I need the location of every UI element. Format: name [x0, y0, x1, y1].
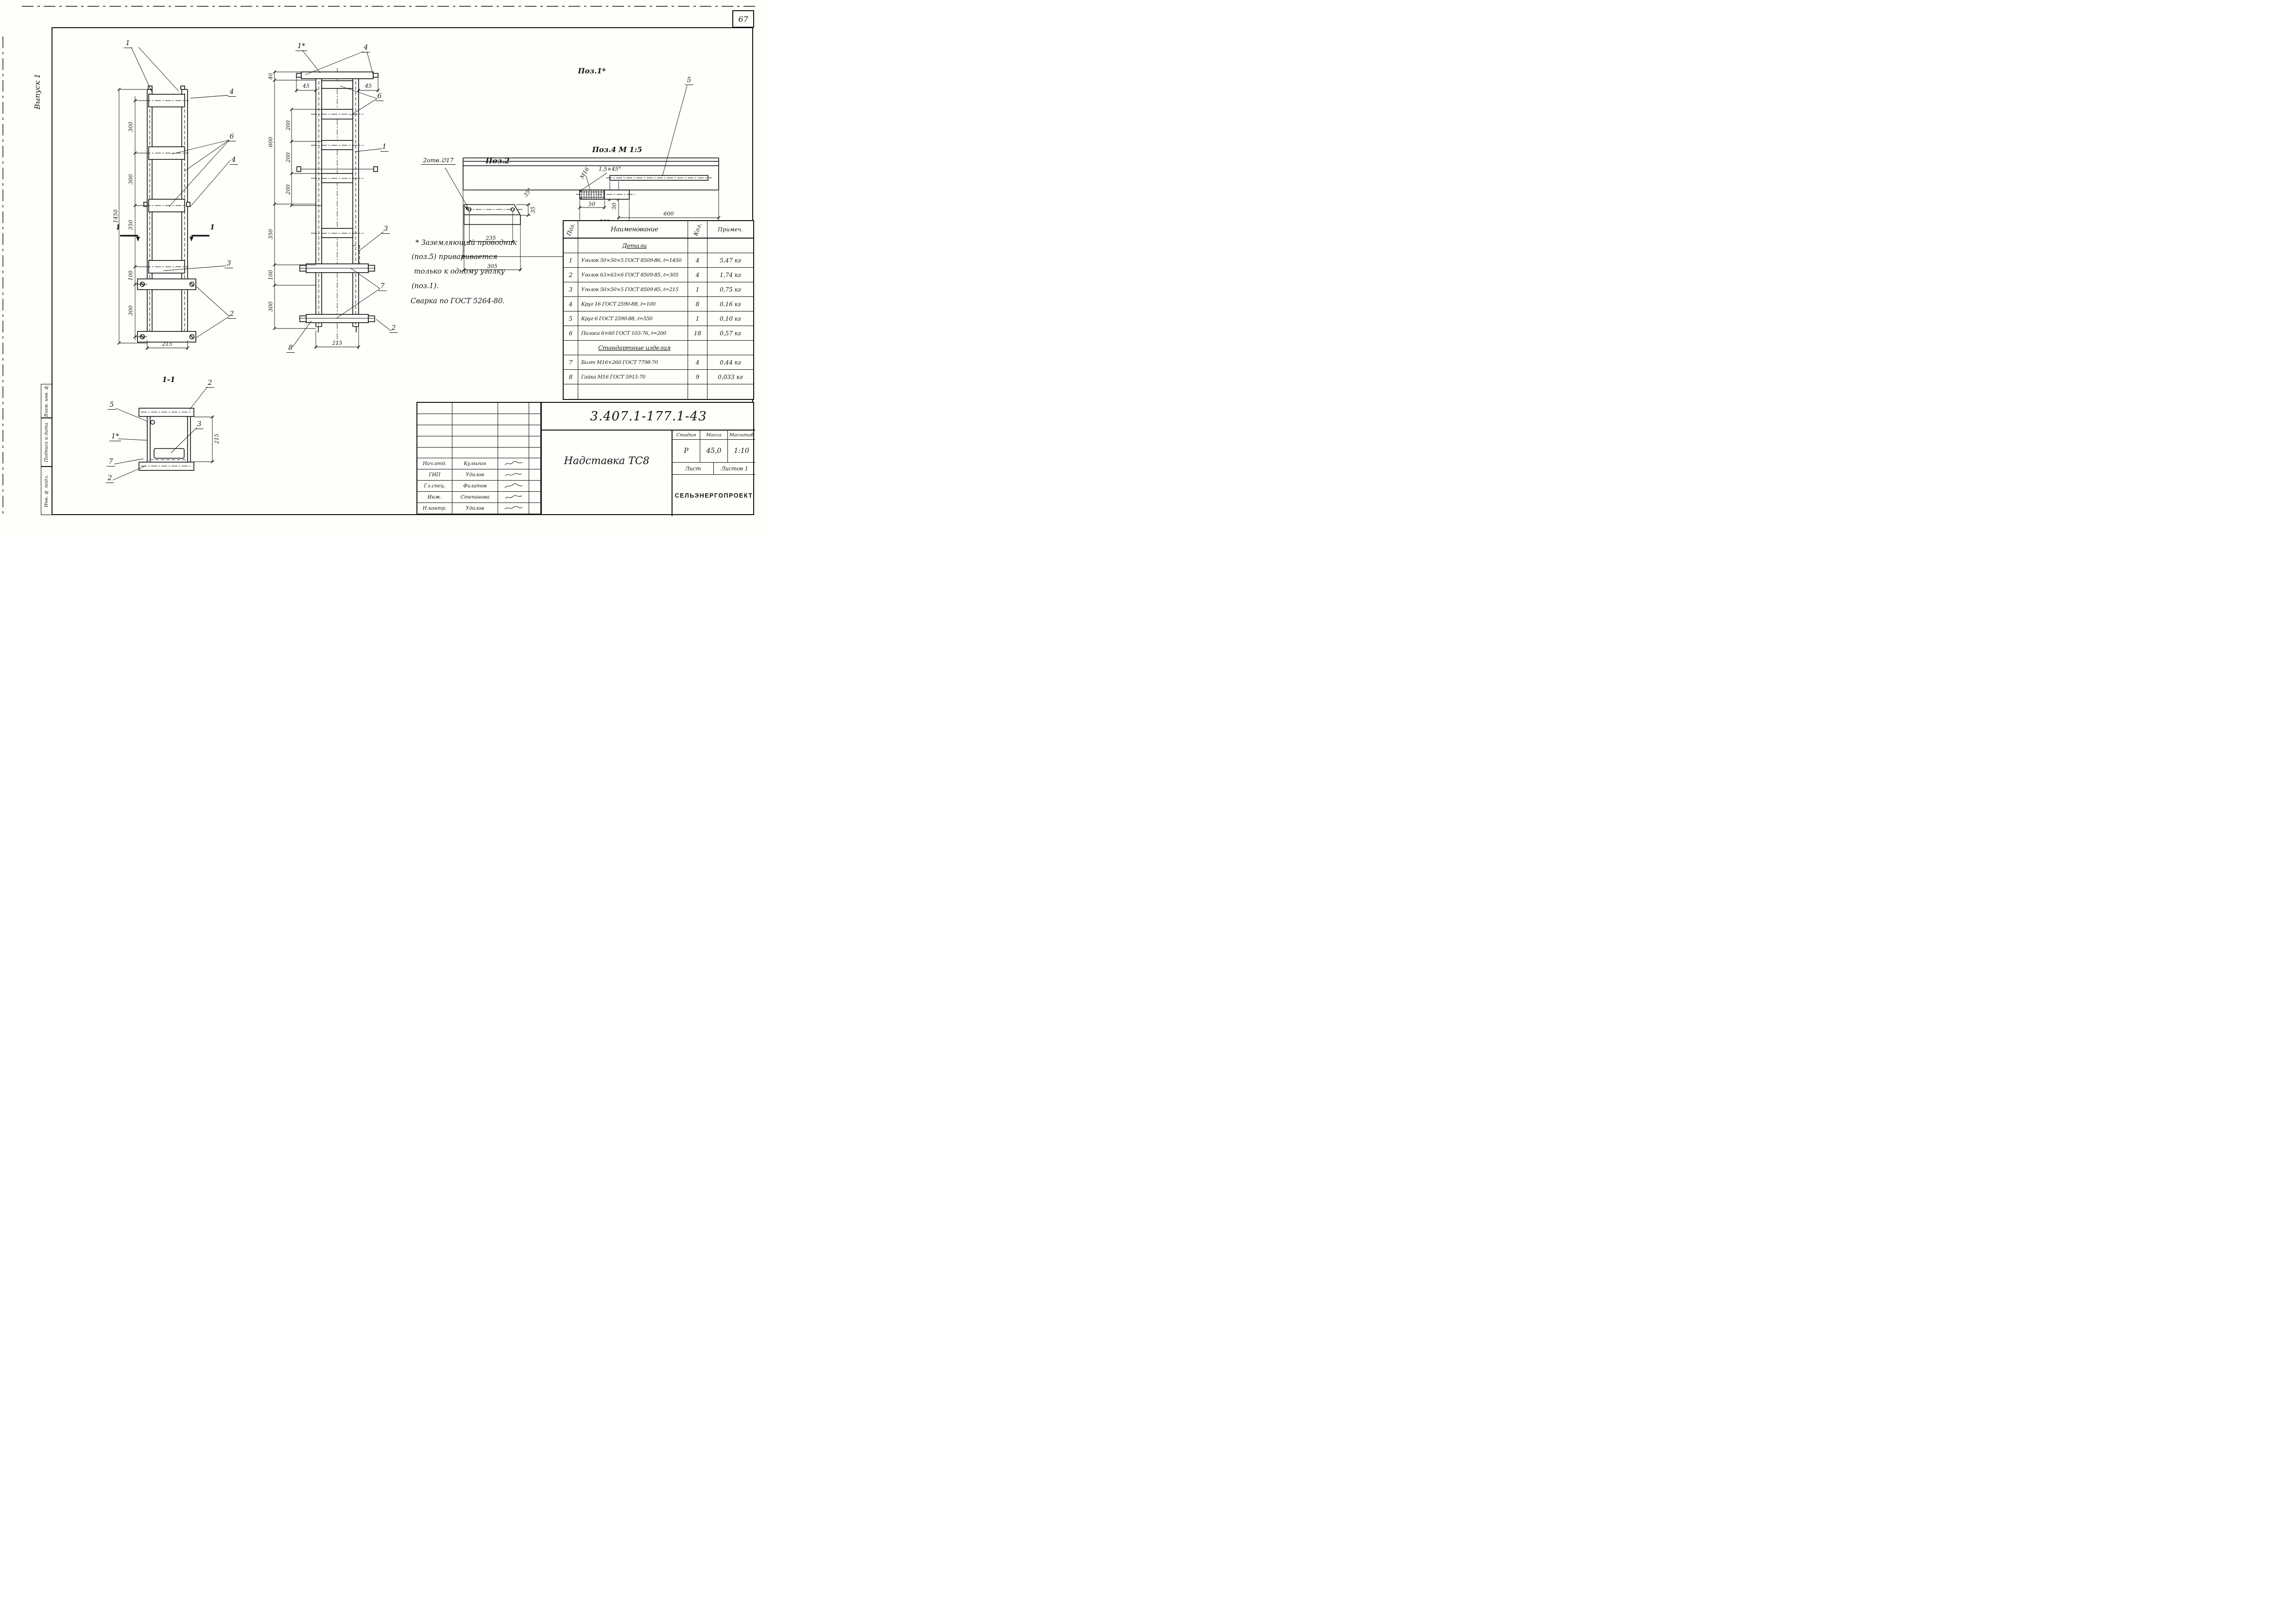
callout-3-sec: 3	[195, 420, 204, 429]
header-qty: Кол.	[688, 221, 708, 238]
callout-1star: 1*	[295, 42, 307, 51]
title-block: Нач.отд. Кулыгин ГИП Удалов Гл.спец. Фил…	[416, 402, 754, 515]
part-qty: 4	[688, 355, 708, 369]
part-pos: 8	[564, 370, 578, 384]
stamp-podpis-data: Подпись и дата	[41, 418, 52, 467]
dim-side-40: 40	[268, 73, 274, 80]
mass-value: 45,0	[700, 440, 728, 463]
doc-number: 3.407.1-177.1-43	[542, 403, 755, 431]
parts-table-header: Поз. Наименование Кол. Примеч.	[564, 221, 753, 239]
scale-value: 1:10	[728, 440, 755, 463]
sig-role: Н.контр.	[417, 503, 452, 514]
dim-side-350: 350	[268, 229, 274, 240]
part-name: Круг 16 ГОСТ 2590-88, ℓ=100	[578, 297, 688, 311]
callout-4-side: 4	[362, 44, 370, 52]
part-qty: 8	[688, 297, 708, 311]
part-pos: 3	[564, 282, 578, 296]
callout-5-pos1: 5	[685, 76, 693, 85]
dim-pos2-35: 35	[530, 207, 536, 213]
dim-side-200a: 200	[285, 121, 292, 131]
signature-icon	[498, 469, 529, 481]
note-line-5: Сварка по ГОСТ 5264-80.	[411, 297, 505, 305]
sheets-label: Листов 1	[714, 463, 755, 475]
dim-front-seg5: 300	[128, 306, 134, 316]
table-row: 8 Гайка М16 ГОСТ 5915-70 9 0,033 кг	[564, 370, 753, 384]
sheet-label: Лист	[673, 463, 714, 475]
table-row: 4 Круг 16 ГОСТ 2590-88, ℓ=100 8 0,16 кг	[564, 297, 753, 311]
header-name: Наименование	[578, 221, 688, 238]
note-line-4: (поз.1).	[412, 282, 439, 290]
table-group-row: Детали	[564, 239, 753, 253]
callout-2-sec-bottom: 2	[106, 474, 114, 483]
part-name: Уголок 63×63×6 ГОСТ 8509-85, ℓ=305	[578, 268, 688, 282]
part-name: Круг 6 ГОСТ 2590-88, ℓ=550	[578, 311, 688, 326]
part-name: Полоса 6×60 ГОСТ 103-76, ℓ=200	[578, 326, 688, 340]
table-empty-row	[564, 384, 753, 399]
part-qty: 1	[688, 282, 708, 296]
sig-role: ГИП	[417, 469, 452, 481]
organization: СЕЛЬЭНЕРГОПРОЕКТ	[673, 475, 755, 516]
callout-4-mid: 4	[230, 156, 238, 165]
empty-cell	[542, 490, 673, 516]
dim-section-width: 215	[214, 434, 220, 444]
side-view	[273, 50, 391, 349]
callout-2: 2	[228, 310, 236, 319]
dim-front-seg3: 350	[128, 220, 134, 230]
issue-label: Выпуск 1	[33, 46, 42, 109]
callout-7-side: 7	[379, 282, 387, 291]
part-name: Уголок 50×50×5 ГОСТ 8509-86, ℓ=1450	[578, 253, 688, 267]
part-qty	[688, 341, 708, 355]
section-mark-left: 1	[116, 224, 121, 231]
part-note: 0,44 кг	[708, 355, 753, 369]
scale-label: Масштаб	[728, 431, 755, 440]
callout-3-side: 3	[382, 225, 390, 234]
callout-6-side: 6	[376, 92, 384, 101]
part-qty: 18	[688, 326, 708, 340]
signature-icon	[498, 481, 529, 492]
part-qty: 4	[688, 268, 708, 282]
group-title: Детали	[578, 239, 688, 253]
dim-front-seg1: 300	[128, 122, 134, 132]
sig-name: Степанова	[452, 492, 498, 503]
table-row: 6 Полоса 6×60 ГОСТ 103-76, ℓ=200 18 0,57…	[564, 326, 753, 341]
dim-side-300: 300	[268, 302, 274, 312]
part-qty: 4	[688, 253, 708, 267]
part-pos: 2	[564, 268, 578, 282]
mass-label: Масса	[700, 431, 728, 440]
dim-front-seg2: 300	[128, 174, 134, 185]
sig-role: Гл.спец.	[417, 481, 452, 492]
signature-icon	[498, 503, 529, 514]
callout-5-sec: 5	[108, 401, 116, 410]
product-title: Надставка ТС8	[542, 431, 673, 490]
callout-1star-sec: 1*	[109, 432, 121, 441]
part-name: Болт М16×260 ГОСТ 7798-70	[578, 355, 688, 369]
section-title: 1-1	[162, 375, 175, 384]
table-row: 1 Уголок 50×50×5 ГОСТ 8509-86, ℓ=1450 4 …	[564, 253, 753, 268]
callout-4-top: 4	[228, 88, 236, 97]
part-qty: 1	[688, 311, 708, 326]
drawing-sheet: .s{stroke:#141414;stroke-width:1.6;fill:…	[0, 0, 765, 536]
callout-8-side: 8	[287, 344, 295, 353]
part-name: Гайка М16 ГОСТ 5915-70	[578, 370, 688, 384]
dim-front-total: 1450	[113, 209, 119, 223]
callout-1-side: 1	[380, 143, 389, 152]
sig-name: Удалов	[452, 503, 498, 514]
dim-side-200b: 200	[285, 153, 292, 163]
part-name: Уголок 50×50×5 ГОСТ 8509-85, ℓ=215	[578, 282, 688, 296]
front-view	[118, 47, 230, 350]
callout-7-sec: 7	[107, 458, 115, 467]
part-note: 0,033 кг	[708, 370, 753, 384]
callout-2-sec-top: 2	[206, 379, 214, 388]
sig-name: Кулыгин	[452, 458, 498, 469]
dim-side-600: 600	[268, 137, 274, 147]
signature-icon	[498, 458, 529, 469]
group-title: Стандартные изделия	[578, 341, 688, 355]
dim-side-width: 215	[332, 340, 343, 346]
dim-front-width: 215	[162, 341, 173, 347]
part-note	[708, 239, 753, 253]
pos2-title: Поз.2	[485, 156, 509, 165]
note-line-3: только к одному уголку	[414, 268, 505, 276]
part-qty	[688, 239, 708, 253]
pos2-holes-note: 2отв.∅17	[421, 157, 456, 165]
signature-icon	[498, 492, 529, 503]
sig-role: Инж.	[417, 492, 452, 503]
table-row: 2 Уголок 63×63×6 ГОСТ 8509-85, ℓ=305 4 1…	[564, 268, 753, 282]
part-note: 0,75 кг	[708, 282, 753, 296]
dim-side-45-right: 45	[365, 83, 372, 89]
table-row: 7 Болт М16×260 ГОСТ 7798-70 4 0,44 кг	[564, 355, 753, 370]
callout-2-side: 2	[390, 324, 398, 333]
table-row: 3 Уголок 50×50×5 ГОСТ 8509-85, ℓ=215 1 0…	[564, 282, 753, 297]
part-qty: 9	[688, 370, 708, 384]
dim-side-45-left: 45	[303, 83, 310, 89]
part-note: 0,57 кг	[708, 326, 753, 340]
dim-pos1-600: 600	[664, 211, 674, 217]
part-note: 0,16 кг	[708, 297, 753, 311]
dim-pos4-50: 50	[588, 201, 595, 207]
part-pos: 4	[564, 297, 578, 311]
dim-front-seg4: 100	[128, 271, 134, 281]
part-pos	[564, 239, 578, 253]
part-pos: 6	[564, 326, 578, 340]
table-row: 5 Круг 6 ГОСТ 2590-88, ℓ=550 1 0,10 кг	[564, 311, 753, 326]
sig-role: Нач.отд.	[417, 458, 452, 469]
note-line-2: (поз.5) приваривается	[412, 253, 498, 261]
note-line-1: * Заземляющий проводник	[415, 239, 517, 247]
callout-1: 1	[124, 39, 132, 48]
sig-name: Удалов	[452, 469, 498, 481]
stage-value: Р	[673, 440, 700, 463]
part-pos: 5	[564, 311, 578, 326]
part-note	[708, 341, 753, 355]
section-mark-right: 1	[210, 224, 215, 231]
callout-6: 6	[228, 133, 236, 141]
part-pos	[564, 341, 578, 355]
callout-3: 3	[225, 259, 233, 268]
sig-name: Филатов	[452, 481, 498, 492]
dim-pos1-50: 50	[611, 203, 618, 209]
part-note: 1,74 кг	[708, 268, 753, 282]
parts-table: Поз. Наименование Кол. Примеч. Детали 1 …	[563, 220, 754, 400]
header-pos: Поз.	[564, 221, 578, 238]
stamp-inv-podl: Инв. № подл.	[41, 467, 52, 515]
pos4-chamfer: 1,5×45°	[599, 166, 621, 173]
pos1-title: Поз.1*	[578, 67, 605, 75]
part-note: 5,47 кг	[708, 253, 753, 267]
section-view	[113, 387, 214, 480]
dim-side-200c: 200	[285, 185, 292, 195]
signature-grid: Нач.отд. Кулыгин ГИП Удалов Гл.спец. Фил…	[417, 403, 542, 514]
stage-label: Стадия	[673, 431, 700, 440]
stamp-vzam-inv: Взам. инв. №	[41, 384, 52, 418]
part-pos: 7	[564, 355, 578, 369]
page-number: 67	[732, 10, 754, 28]
header-note: Примеч.	[708, 221, 753, 238]
part-pos: 1	[564, 253, 578, 267]
dim-side-100: 100	[268, 270, 274, 280]
pos4-title: Поз.4 М 1:5	[592, 145, 642, 154]
table-group-row: Стандартные изделия	[564, 341, 753, 355]
part-note: 0,10 кг	[708, 311, 753, 326]
